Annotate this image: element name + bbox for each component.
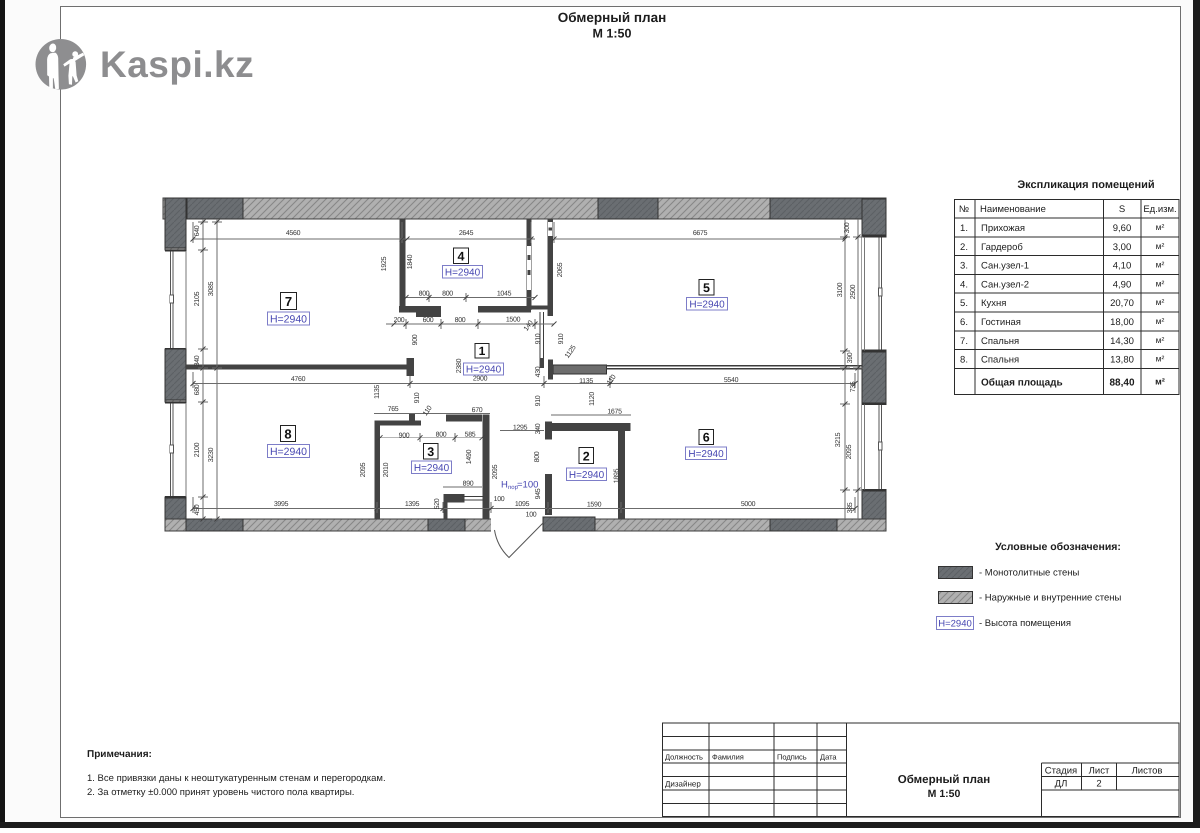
svg-text:430: 430 [535, 366, 542, 377]
svg-text:м²: м² [1156, 278, 1165, 288]
svg-text:H=2940: H=2940 [445, 268, 481, 279]
svg-text:ДЛ: ДЛ [1055, 779, 1068, 790]
svg-text:300: 300 [844, 222, 851, 233]
svg-text:1675: 1675 [607, 409, 622, 416]
svg-text:H=2940: H=2940 [270, 446, 307, 458]
svg-text:4.: 4. [960, 279, 968, 290]
svg-text:680: 680 [194, 384, 201, 395]
svg-text:2095: 2095 [492, 464, 499, 479]
svg-text:4,90: 4,90 [1113, 279, 1132, 290]
svg-text:6675: 6675 [693, 230, 708, 237]
svg-text:2380: 2380 [456, 358, 463, 373]
svg-text:S: S [1119, 204, 1125, 215]
svg-text:3995: 3995 [274, 501, 289, 508]
svg-text:450: 450 [194, 504, 201, 515]
svg-text:2095: 2095 [846, 444, 853, 459]
svg-text:3,00: 3,00 [1113, 242, 1132, 253]
svg-text:Спальня: Спальня [981, 336, 1019, 347]
svg-text:910: 910 [535, 333, 542, 344]
svg-text:88,40: 88,40 [1109, 378, 1134, 389]
svg-text:2900: 2900 [473, 376, 488, 383]
svg-text:4: 4 [458, 250, 465, 264]
svg-text:8.: 8. [960, 355, 968, 366]
svg-text:765: 765 [388, 406, 399, 413]
svg-text:Сан.узел-2: Сан.узел-2 [981, 279, 1029, 290]
svg-text:1500: 1500 [506, 317, 521, 324]
svg-text:H: H [501, 480, 508, 491]
svg-text:3230: 3230 [208, 447, 215, 462]
svg-text:Kaspi.kz: Kaspi.kz [100, 44, 254, 85]
svg-text:3215: 3215 [835, 432, 842, 447]
svg-text:5540: 5540 [724, 377, 739, 384]
svg-text:- Высота помещения: - Высота помещения [979, 618, 1071, 629]
svg-text:Ед.изм.: Ед.изм. [1143, 204, 1176, 215]
svg-text:7: 7 [285, 294, 292, 309]
svg-text:390: 390 [847, 352, 854, 363]
svg-text:1. Все привязки даны к неоштук: 1. Все привязки даны к неоштукатуренным … [87, 773, 386, 784]
svg-text:100: 100 [526, 512, 537, 519]
svg-text:5000: 5000 [741, 501, 756, 508]
svg-text:1045: 1045 [497, 291, 512, 298]
svg-text:800: 800 [455, 317, 466, 324]
svg-text:H=2940: H=2940 [414, 463, 450, 474]
svg-text:H=2940: H=2940 [938, 619, 972, 630]
svg-text:4560: 4560 [286, 230, 301, 237]
svg-text:520: 520 [434, 498, 441, 509]
svg-text:1120: 1120 [589, 392, 596, 406]
svg-text:4760: 4760 [291, 376, 306, 383]
svg-text:200: 200 [394, 317, 405, 324]
svg-text:Лист: Лист [1089, 766, 1110, 777]
svg-text:3.: 3. [960, 261, 968, 272]
svg-text:13,80: 13,80 [1110, 355, 1134, 366]
svg-text:1490: 1490 [466, 449, 473, 464]
svg-text:3: 3 [427, 445, 434, 459]
svg-text:м²: м² [1156, 260, 1165, 270]
svg-text:Должность: Должность [665, 753, 703, 762]
svg-text:H=2940: H=2940 [569, 470, 605, 481]
svg-text:5.: 5. [960, 298, 968, 309]
svg-text:2: 2 [583, 450, 590, 464]
svg-text:1095: 1095 [515, 501, 530, 508]
svg-text:3100: 3100 [837, 282, 844, 297]
svg-text:Общая площадь: Общая площадь [981, 378, 1063, 389]
svg-text:- Монотолитные стены: - Монотолитные стены [979, 568, 1079, 579]
svg-text:Экспликация помещений: Экспликация помещений [1017, 179, 1154, 191]
svg-text:7.: 7. [960, 336, 968, 347]
svg-text:1.: 1. [960, 223, 968, 234]
svg-text:340: 340 [194, 355, 201, 366]
svg-text:Прихожая: Прихожая [981, 223, 1025, 234]
svg-text:800: 800 [442, 291, 453, 298]
svg-text:6: 6 [703, 431, 710, 445]
svg-text:Обмерный план: Обмерный план [558, 10, 667, 25]
svg-text:600: 600 [423, 317, 434, 324]
svg-text:H=2940: H=2940 [688, 449, 724, 460]
svg-text:585: 585 [465, 432, 476, 439]
svg-text:3085: 3085 [208, 281, 215, 296]
svg-text:5: 5 [703, 281, 710, 295]
svg-text:Гостиная: Гостиная [981, 317, 1021, 328]
svg-text:Сан.узел-1: Сан.узел-1 [981, 261, 1029, 272]
svg-text:Наименование: Наименование [980, 204, 1046, 215]
svg-text:800: 800 [419, 291, 430, 298]
svg-text:Обмерный план: Обмерный план [898, 774, 991, 786]
svg-text:910: 910 [414, 392, 421, 403]
svg-text:640: 640 [194, 225, 201, 236]
svg-text:М 1:50: М 1:50 [593, 27, 632, 41]
svg-text:1395: 1395 [405, 501, 420, 508]
svg-text:2105: 2105 [194, 291, 201, 306]
svg-text:945: 945 [535, 488, 542, 499]
svg-text:1135: 1135 [579, 378, 593, 385]
svg-text:18,00: 18,00 [1110, 317, 1134, 328]
svg-text:м²: м² [1156, 316, 1165, 326]
svg-text:- Наружные и внутренние стены: - Наружные и внутренние стены [979, 593, 1121, 604]
svg-text:385: 385 [847, 502, 854, 513]
svg-text:800: 800 [436, 432, 447, 439]
svg-text:М 1:50: М 1:50 [928, 788, 961, 800]
svg-text:1295: 1295 [513, 425, 528, 432]
svg-text:1: 1 [479, 344, 486, 358]
svg-text:890: 890 [463, 481, 474, 488]
svg-text:2. За отметку ±0.000 принят ур: 2. За отметку ±0.000 принят уровень чист… [87, 787, 354, 798]
svg-text:H=2940: H=2940 [270, 314, 307, 326]
svg-text:20,70: 20,70 [1110, 298, 1134, 309]
svg-text:910: 910 [558, 333, 565, 344]
svg-text:1590: 1590 [587, 502, 602, 509]
svg-text:м²: м² [1156, 354, 1165, 364]
svg-text:Кухня: Кухня [981, 298, 1006, 309]
svg-text:Подпись: Подпись [777, 753, 807, 762]
svg-text:2: 2 [1096, 779, 1101, 790]
svg-text:Примечания:: Примечания: [87, 749, 152, 760]
svg-text:4,10: 4,10 [1113, 261, 1132, 272]
svg-text:670: 670 [472, 407, 483, 414]
svg-text:Листов: Листов [1132, 766, 1163, 777]
svg-text:1135: 1135 [374, 385, 381, 399]
svg-text:м²: м² [1155, 377, 1165, 387]
svg-text:м²: м² [1156, 297, 1165, 307]
svg-text:800: 800 [534, 451, 541, 462]
svg-text:9,60: 9,60 [1113, 223, 1132, 234]
svg-text:м²: м² [1156, 335, 1165, 345]
svg-text:1925: 1925 [381, 256, 388, 271]
svg-text:900: 900 [412, 334, 419, 345]
svg-text:1840: 1840 [407, 254, 414, 269]
svg-text:2010: 2010 [383, 462, 390, 477]
svg-text:Фамилия: Фамилия [712, 753, 744, 762]
svg-text:2065: 2065 [557, 262, 564, 277]
svg-text:340: 340 [535, 423, 542, 434]
svg-text:8: 8 [284, 427, 291, 442]
svg-text:Условные обозначения:: Условные обозначения: [995, 541, 1121, 553]
svg-text:Дата: Дата [820, 753, 837, 762]
svg-text:2.: 2. [960, 242, 968, 253]
svg-text:№: № [959, 204, 969, 215]
svg-text:Гардероб: Гардероб [981, 242, 1023, 253]
svg-text:2095: 2095 [360, 462, 367, 477]
svg-text:2645: 2645 [459, 230, 474, 237]
svg-text:2100: 2100 [194, 442, 201, 457]
svg-text:Дизайнер: Дизайнер [665, 780, 701, 789]
svg-text:735: 735 [850, 381, 857, 392]
svg-text:6.: 6. [960, 317, 968, 328]
svg-text:1895: 1895 [614, 468, 621, 483]
svg-text:2500: 2500 [850, 284, 857, 299]
svg-text:Спальня: Спальня [981, 355, 1019, 366]
svg-text:900: 900 [399, 433, 410, 440]
svg-text:м²: м² [1156, 241, 1165, 251]
svg-text:Стадия: Стадия [1045, 766, 1077, 777]
svg-text:14,30: 14,30 [1110, 336, 1134, 347]
svg-text:H=2940: H=2940 [466, 365, 502, 376]
svg-text:910: 910 [535, 395, 542, 406]
svg-text:м²: м² [1156, 222, 1165, 232]
svg-text:100: 100 [494, 496, 505, 503]
svg-text:H=2940: H=2940 [689, 300, 725, 311]
